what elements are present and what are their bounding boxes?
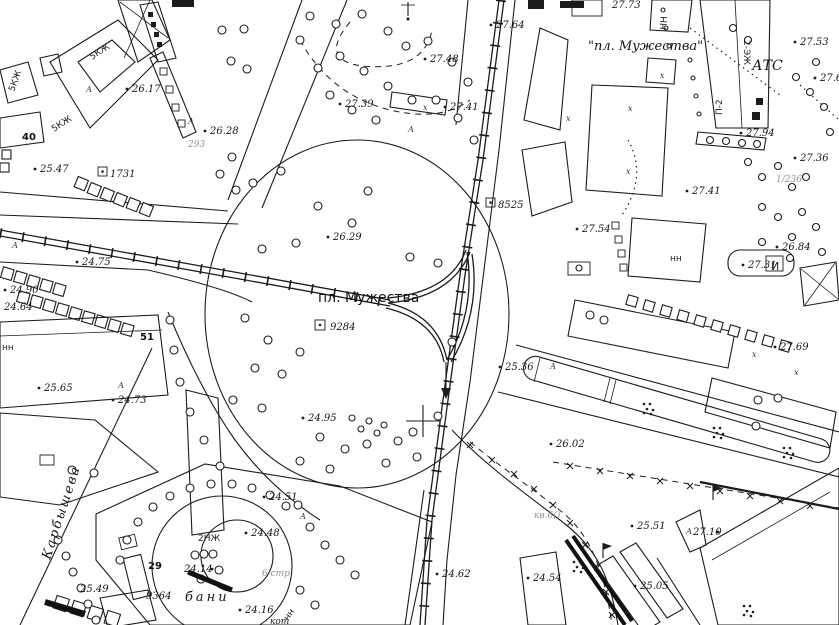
topo-map-viewport: пл. Мужества "пл. Мужества" Карбышева АТ… <box>0 0 839 625</box>
reference-number: 9284 <box>330 322 355 333</box>
spot-elevation: 27.69 <box>779 342 809 353</box>
bani-label: бани <box>185 590 230 605</box>
building-type: 2-ЭЖ <box>741 40 751 65</box>
terrain-letter-mark: х <box>752 350 757 359</box>
building-number: 51 <box>140 332 154 343</box>
reference-number: 1731 <box>110 169 135 180</box>
block-left-middle <box>0 315 224 535</box>
building-type: 5КЖ <box>7 69 24 93</box>
stroy-label: 6 стр <box>262 569 290 579</box>
spot-elevation: 27.64 <box>495 20 525 31</box>
spot-elevation: 25.65 <box>43 383 73 394</box>
reference-number: 8525 <box>498 200 523 211</box>
spot-elevation: 24.90 <box>9 285 39 296</box>
metro-station-label: "пл. Мужества" <box>588 39 703 54</box>
terrain-letter-mark: х <box>423 103 428 112</box>
terrain-letter-mark: х <box>794 368 799 377</box>
spot-elevation: 27.73 <box>611 0 641 11</box>
building-type: 5КЖ <box>50 114 74 134</box>
kiosk-row-left-b <box>17 291 135 337</box>
spot-elevation: 27.54 <box>581 224 611 235</box>
terrain-letter-mark: А <box>11 241 18 250</box>
trees-oval <box>229 167 456 473</box>
terrain-letter-mark: А <box>685 527 692 536</box>
spot-elevation: 25.49 <box>79 584 109 595</box>
spot-elevation: 24.75 <box>81 257 111 268</box>
building-type: 5КЖ <box>88 42 112 62</box>
street-name-label: Карбышева <box>39 463 84 562</box>
spot-elevation: 24.54 <box>532 573 562 584</box>
atc-label: АТС <box>751 58 783 74</box>
spot-elevation: 26.17 <box>131 84 161 95</box>
building-type: нн <box>670 254 682 264</box>
spot-elevation: 27.6 <box>819 73 839 84</box>
building-type: 2НЖ <box>198 534 220 544</box>
square-name-label: пл. Мужества <box>318 290 419 306</box>
spot-elevation: 25.47 <box>39 164 69 175</box>
spot-elevation: 25.36 <box>504 362 534 373</box>
spot-elevation: 24.16 <box>244 605 274 616</box>
building-type: нн <box>2 343 14 353</box>
kiosk-row-upper <box>74 176 153 216</box>
spot-elevation: 24.73 <box>117 395 147 406</box>
terrain-letter-mark: х <box>626 167 631 176</box>
building-type: НН <box>659 16 670 30</box>
reference-number: 9364 <box>146 591 171 602</box>
spot-elevation: 24.64 <box>3 302 33 313</box>
building-number: 40 <box>22 132 36 143</box>
spot-elevation: 26.29 <box>332 232 362 243</box>
block-number-faint-label: 1/236 <box>776 175 802 185</box>
building-type: И <box>771 260 779 273</box>
spot-elevation: 27.41 <box>449 102 479 113</box>
terrain-letter-mark: А <box>187 117 194 126</box>
spot-elevation: 26.28 <box>209 126 239 137</box>
terrain-letter-mark: х <box>660 71 665 80</box>
construction-area <box>467 442 839 625</box>
terrain-letter-mark: А <box>549 362 556 371</box>
spot-elevation: 25.51 <box>636 521 666 532</box>
spot-elevation: 27.36 <box>799 153 829 164</box>
ruins-label: 293 <box>187 140 205 150</box>
conifer-tree-icon <box>401 2 415 21</box>
terrain-letter-mark: х <box>628 104 633 113</box>
spot-elevation-labels: 26.17 26.28 25.47 24.75 24.90 24.64 25.6… <box>3 0 839 616</box>
block-top-left <box>0 0 196 172</box>
spot-elevation: 24.48 <box>250 528 280 539</box>
building-number-labels: 40 51 29 <box>22 132 162 572</box>
spot-elevation: 27.39 <box>344 99 374 110</box>
spot-elevation: 25.05 <box>639 581 669 592</box>
reference-number-labels: 1731 8525 9284 9364 <box>98 167 523 602</box>
spot-elevation: 27.94 <box>745 128 775 139</box>
spot-elevation: 26.02 <box>555 439 585 450</box>
terrain-letter-mark: х <box>566 114 571 123</box>
spot-elevation: 27.41 <box>691 186 721 197</box>
terrain-letter-mark: А <box>299 512 306 521</box>
spot-elevation: 24.95 <box>307 413 337 424</box>
building-number: 29 <box>148 561 162 572</box>
spot-elevation: 24.51 <box>268 492 298 503</box>
kiosk-row-right <box>626 295 791 352</box>
trees-street-curve <box>166 316 224 470</box>
spot-elevation: 27.10 <box>692 527 722 538</box>
building-type: П-2 <box>715 99 725 115</box>
terrain-letter-mark: А <box>117 381 124 390</box>
terrain-letter-mark: А <box>407 125 414 134</box>
topo-map-canvas[interactable]: пл. Мужества "пл. Мужества" Карбышева АТ… <box>0 0 839 625</box>
spot-elevation: 27.53 <box>799 37 829 48</box>
kvartal-label: кв.6() <box>534 510 561 521</box>
square-oval <box>205 140 509 488</box>
spot-elevation: 24.14 <box>183 564 213 575</box>
spot-elevation: 26.84 <box>781 242 811 253</box>
terrain-letter-mark: А <box>85 85 92 94</box>
spot-elevation: 24.62 <box>441 569 471 580</box>
spot-elevation: 27.48 <box>429 54 459 65</box>
